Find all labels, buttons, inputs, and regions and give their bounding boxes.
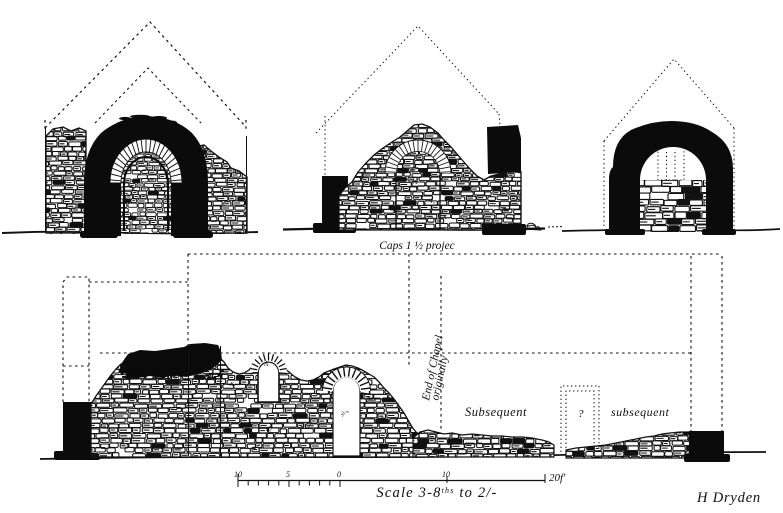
svg-text:4,: 4,: [203, 422, 209, 431]
svg-text:Λ: Λ: [263, 360, 269, 368]
svg-text:4/: 4/: [266, 425, 273, 434]
svg-text:½: ½: [412, 177, 418, 186]
svg-text:20f′: 20f′: [549, 472, 566, 484]
svg-text:10: 10: [442, 470, 450, 479]
svg-text:x: x: [442, 212, 447, 221]
svg-text:10: 10: [234, 470, 242, 479]
svg-text:?: ?: [578, 408, 584, 420]
svg-text:Subsequent: Subsequent: [465, 405, 527, 419]
svg-text:Scale 3-8ths to 2/-: Scale 3-8ths to 2/-: [376, 485, 497, 501]
svg-text:5: 5: [286, 470, 290, 479]
svg-text:0: 0: [337, 470, 341, 479]
svg-text:4,: 4,: [429, 196, 435, 205]
svg-text:subsequent: subsequent: [611, 405, 669, 419]
svg-text:4: 4: [360, 172, 364, 181]
svg-text:4: 4: [410, 165, 414, 174]
svg-text:Caps 1 ½ projec: Caps 1 ½ projec: [379, 240, 455, 252]
svg-text:x: x: [229, 379, 234, 388]
svg-text:H Dryden: H Dryden: [696, 490, 761, 506]
svg-text:4/7: 4/7: [301, 421, 312, 430]
svg-text:²⁄‶: ²⁄‶: [341, 410, 349, 419]
svg-text:4½: 4½: [173, 375, 183, 384]
